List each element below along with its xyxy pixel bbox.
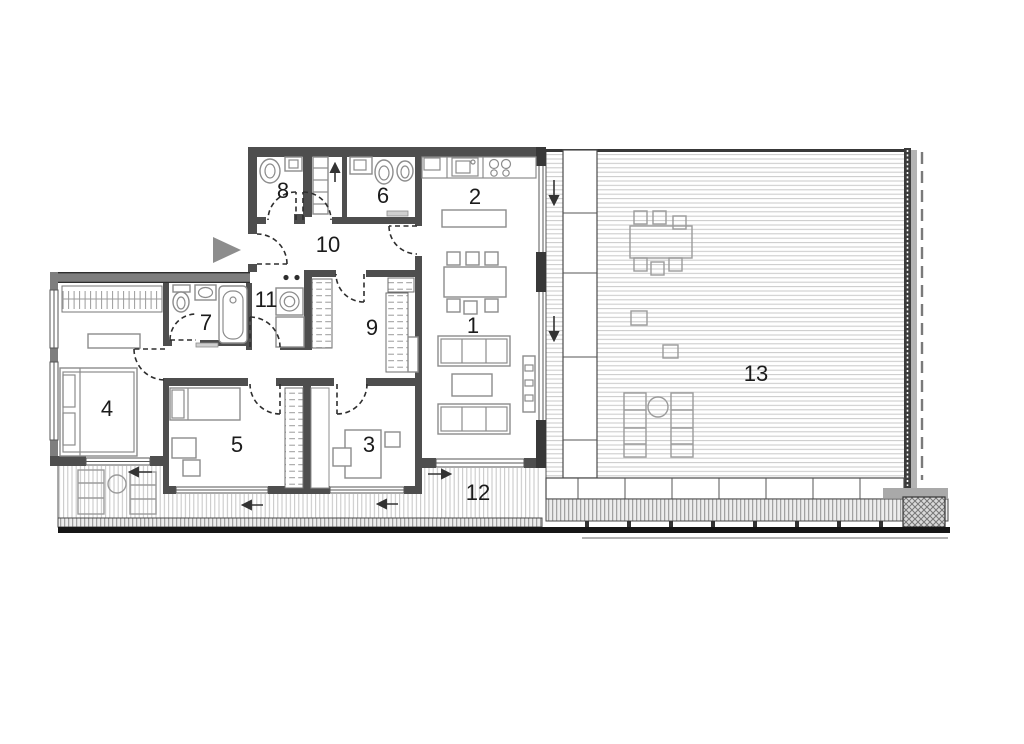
room-label-kitchen: 2	[469, 184, 481, 209]
balcony-deck-left	[58, 466, 163, 518]
railing-posts	[585, 521, 883, 527]
chair	[183, 460, 200, 476]
terrace-bottom-planters	[546, 478, 904, 499]
door-swing-room3	[337, 384, 367, 414]
door-swing-kitchen	[389, 226, 417, 254]
door-swing-room9	[336, 274, 364, 302]
bed	[60, 368, 137, 456]
bath-mat	[387, 211, 408, 216]
chair	[447, 299, 460, 312]
room-label-hall10: 10	[316, 232, 340, 257]
wardrobe-room5	[285, 388, 303, 488]
sink	[285, 157, 302, 171]
bath-mat	[196, 343, 218, 347]
room-5-furniture	[170, 388, 240, 476]
floor-plan: 1 2 3 4 5 6 7 8 9 10 11 12 13	[0, 0, 1024, 744]
room-label-terrace13: 13	[744, 361, 768, 386]
terrace-top-edge	[546, 149, 905, 152]
dining-table	[444, 267, 506, 297]
shower	[313, 157, 328, 214]
door-swing-room4	[134, 349, 165, 380]
chair	[485, 252, 498, 265]
side-table	[385, 432, 400, 447]
sofa-set	[438, 336, 535, 434]
outer-edge-bar	[58, 527, 950, 533]
closet	[388, 278, 414, 292]
desk	[172, 438, 196, 458]
entrance-arrow-icon	[213, 237, 241, 263]
toilet-tank	[173, 285, 190, 292]
wardrobe-room9	[386, 293, 408, 372]
terrace-13	[546, 148, 948, 538]
balcony-railing	[58, 518, 542, 527]
coffee-table	[452, 374, 492, 396]
room-label-balcony12: 12	[466, 480, 490, 505]
room-label-util11: 11	[255, 287, 278, 312]
room-label-wc8: 8	[277, 178, 289, 203]
room-11-laundry-fixtures	[276, 275, 304, 347]
closet	[312, 279, 332, 348]
sofa	[438, 404, 510, 434]
terrace-deck	[546, 152, 904, 478]
terrace-railing	[546, 499, 948, 521]
terrace-right-railing	[904, 148, 922, 488]
tap-icon	[294, 275, 299, 280]
tap-icon	[283, 275, 288, 280]
structural-column	[903, 497, 945, 527]
shelf	[408, 337, 418, 372]
floor-plan-page: 1 2 3 4 5 6 7 8 9 10 11 12 13	[0, 0, 1024, 744]
planter-column	[563, 150, 597, 478]
room-label-bedroom5: 5	[231, 432, 243, 457]
room-label-living: 1	[467, 313, 479, 338]
chair	[447, 252, 460, 265]
room-label-study: 3	[363, 432, 375, 457]
door-swing-room7	[170, 314, 196, 340]
chair	[485, 299, 498, 312]
glazed-wall-east	[537, 166, 545, 420]
kitchen-island	[442, 210, 506, 227]
dining-set	[444, 252, 506, 314]
shower-stall	[313, 157, 335, 214]
kitchen-counter	[422, 157, 536, 178]
balcony-deck-mid	[163, 494, 421, 518]
room-label-bath6: 6	[377, 183, 389, 208]
room-label-bath7: 7	[200, 310, 212, 335]
bench	[88, 334, 140, 348]
bed	[170, 388, 240, 420]
chair	[466, 252, 479, 265]
room-label-bedroom4: 4	[101, 396, 113, 421]
chair	[333, 448, 351, 466]
wardrobe-room3	[311, 388, 329, 488]
room-4-furniture	[60, 334, 140, 456]
sofa	[438, 336, 510, 366]
door-swing-room5	[250, 384, 280, 414]
room-label-closet9: 9	[366, 315, 378, 340]
door-swing-entrance	[257, 234, 287, 264]
